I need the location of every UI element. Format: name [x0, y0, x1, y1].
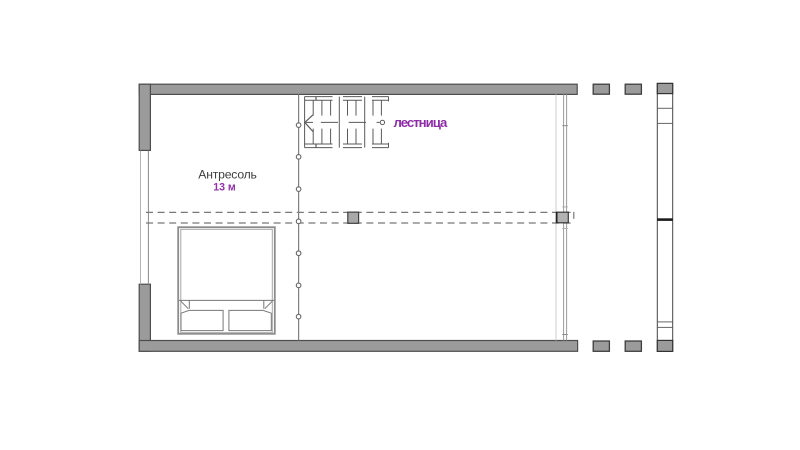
svg-text:Антресоль: Антресоль — [198, 168, 256, 182]
svg-text:13 м: 13 м — [213, 181, 236, 193]
svg-text:лестница: лестница — [394, 115, 448, 130]
